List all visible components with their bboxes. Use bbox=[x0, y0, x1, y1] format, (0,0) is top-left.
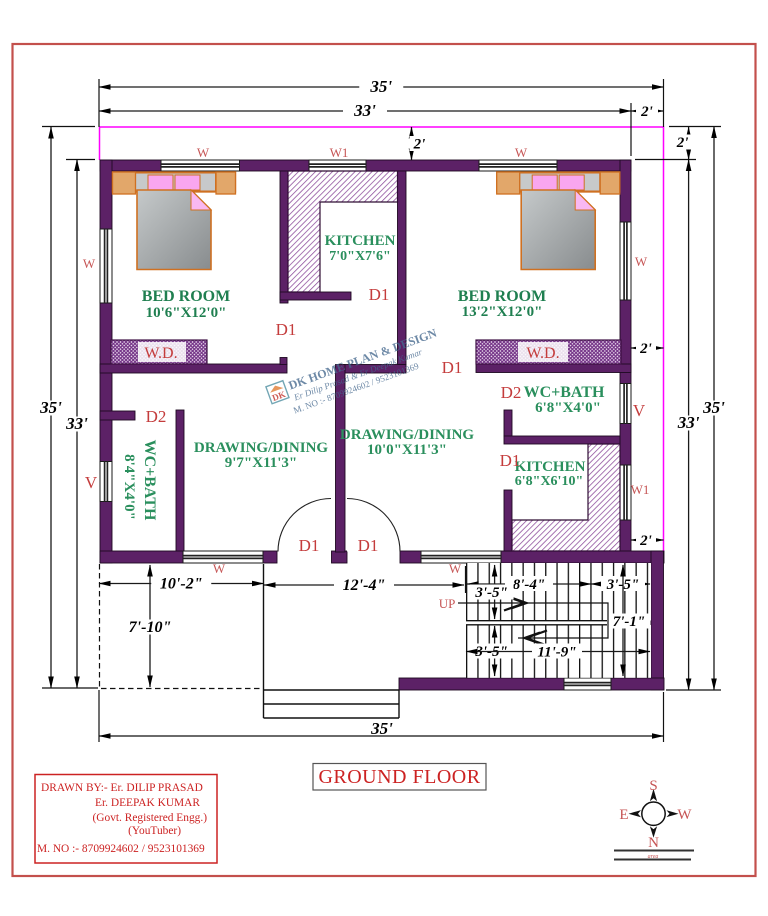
svg-text:W: W bbox=[635, 254, 648, 269]
svg-text:2': 2' bbox=[639, 341, 652, 357]
svg-text:W.D.: W.D. bbox=[144, 345, 177, 362]
svg-text:N: N bbox=[648, 835, 659, 851]
svg-text:D1: D1 bbox=[500, 451, 521, 470]
svg-text:S: S bbox=[649, 778, 657, 794]
svg-text:33': 33' bbox=[353, 101, 376, 120]
svg-text:W: W bbox=[449, 561, 462, 576]
svg-text:area: area bbox=[648, 854, 659, 860]
svg-text:WC+BATH: WC+BATH bbox=[524, 384, 605, 401]
svg-text:13'2"X12'0": 13'2"X12'0" bbox=[462, 304, 543, 320]
svg-text:9'7"X11'3": 9'7"X11'3" bbox=[225, 455, 298, 471]
svg-text:11'-9": 11'-9" bbox=[537, 645, 576, 661]
svg-text:D1: D1 bbox=[442, 358, 463, 377]
svg-text:D2: D2 bbox=[501, 383, 522, 402]
svg-text:2': 2' bbox=[676, 135, 689, 151]
svg-text:W.D.: W.D. bbox=[526, 345, 559, 362]
svg-text:GROUND FLOOR: GROUND FLOOR bbox=[318, 766, 480, 788]
svg-text:2': 2' bbox=[413, 137, 426, 153]
svg-text:Er. DEEPAK KUMAR: Er. DEEPAK KUMAR bbox=[95, 797, 200, 809]
svg-text:8'4"X4'0": 8'4"X4'0" bbox=[121, 454, 137, 520]
svg-text:W1: W1 bbox=[330, 145, 349, 160]
svg-text:2': 2' bbox=[640, 104, 653, 120]
svg-text:D2: D2 bbox=[146, 407, 167, 426]
svg-text:35': 35' bbox=[39, 398, 62, 417]
svg-text:W1: W1 bbox=[631, 482, 650, 497]
svg-text:UP: UP bbox=[439, 596, 456, 611]
svg-text:33': 33' bbox=[65, 414, 88, 433]
svg-text:35': 35' bbox=[369, 77, 392, 96]
svg-text:BED ROOM: BED ROOM bbox=[142, 288, 230, 305]
svg-text:W: W bbox=[677, 807, 692, 823]
svg-text:35': 35' bbox=[370, 719, 393, 738]
svg-text:D1: D1 bbox=[369, 285, 390, 304]
svg-text:(Govt. Registered Engg.): (Govt. Registered Engg.) bbox=[92, 812, 207, 824]
svg-text:KITCHEN: KITCHEN bbox=[325, 233, 396, 249]
svg-text:W: W bbox=[197, 145, 210, 160]
svg-text:V: V bbox=[633, 401, 646, 420]
svg-text:2': 2' bbox=[639, 533, 652, 549]
svg-text:10'0"X11'3": 10'0"X11'3" bbox=[367, 442, 447, 458]
svg-text:DRAWN BY:- Er. DILIP PRASAD: DRAWN BY:- Er. DILIP PRASAD bbox=[41, 782, 203, 794]
svg-text:D1: D1 bbox=[358, 536, 379, 555]
svg-text:WC+BATH: WC+BATH bbox=[141, 440, 158, 521]
svg-text:KITCHEN: KITCHEN bbox=[515, 459, 586, 475]
svg-text:BED ROOM: BED ROOM bbox=[458, 288, 546, 305]
svg-text:D1: D1 bbox=[276, 320, 297, 339]
svg-text:M. NO :- 8709924602 / 95231013: M. NO :- 8709924602 / 9523101369 bbox=[37, 843, 205, 855]
svg-text:DRAWING/DINING: DRAWING/DINING bbox=[194, 440, 329, 456]
svg-text:W: W bbox=[83, 256, 96, 271]
svg-text:12'-4": 12'-4" bbox=[343, 577, 386, 594]
svg-text:(YouTuber): (YouTuber) bbox=[128, 825, 181, 837]
svg-text:E: E bbox=[619, 807, 628, 823]
svg-text:DRAWING/DINING: DRAWING/DINING bbox=[340, 427, 475, 443]
svg-text:V: V bbox=[85, 473, 98, 492]
svg-text:8'-4": 8'-4" bbox=[513, 577, 546, 593]
svg-text:W: W bbox=[515, 145, 528, 160]
svg-text:W: W bbox=[213, 561, 226, 576]
svg-text:10'-2": 10'-2" bbox=[160, 576, 203, 593]
svg-text:D1: D1 bbox=[299, 536, 320, 555]
svg-text:7'-10": 7'-10" bbox=[129, 619, 172, 636]
svg-text:6'8"X4'0": 6'8"X4'0" bbox=[535, 400, 601, 416]
svg-text:3'-5": 3'-5" bbox=[474, 585, 508, 601]
svg-text:35': 35' bbox=[702, 398, 725, 417]
svg-text:10'6"X12'0": 10'6"X12'0" bbox=[146, 305, 227, 321]
svg-text:7'-1": 7'-1" bbox=[613, 614, 646, 630]
svg-text:7'0"X7'6": 7'0"X7'6" bbox=[329, 249, 390, 264]
svg-text:6'8"X6'10": 6'8"X6'10" bbox=[515, 474, 583, 489]
svg-text:33': 33' bbox=[677, 413, 700, 432]
